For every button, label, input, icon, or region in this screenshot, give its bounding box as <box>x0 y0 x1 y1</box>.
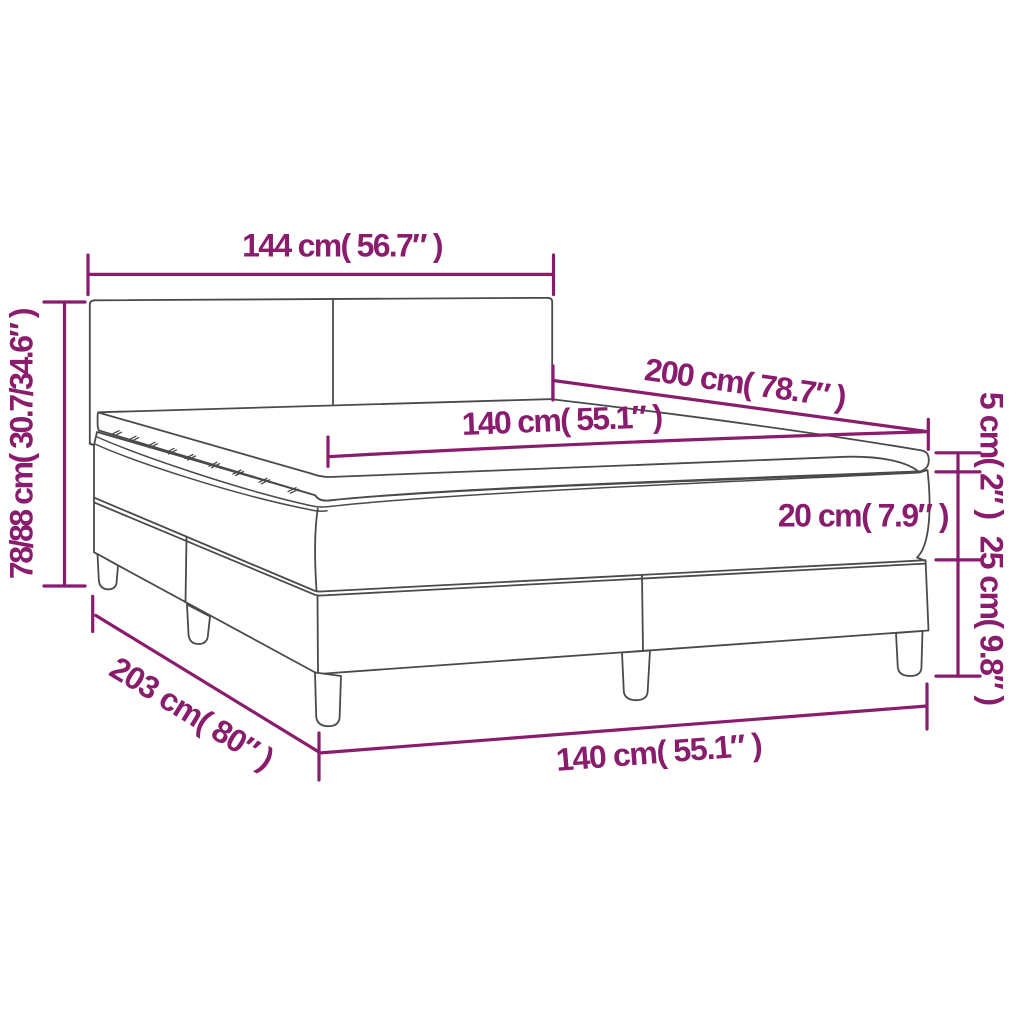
svg-text:78/88 cm( 30.7/34.6″ ): 78/88 cm( 30.7/34.6″ ) <box>4 308 40 579</box>
svg-text:25 cm( 9.8″ ): 25 cm( 9.8″ ) <box>973 536 1009 706</box>
svg-text:5 cm( 2″ ): 5 cm( 2″ ) <box>973 392 1009 519</box>
svg-text:144 cm( 56.7″ ): 144 cm( 56.7″ ) <box>242 228 443 264</box>
svg-text:20 cm( 7.9″ ): 20 cm( 7.9″ ) <box>778 498 949 534</box>
